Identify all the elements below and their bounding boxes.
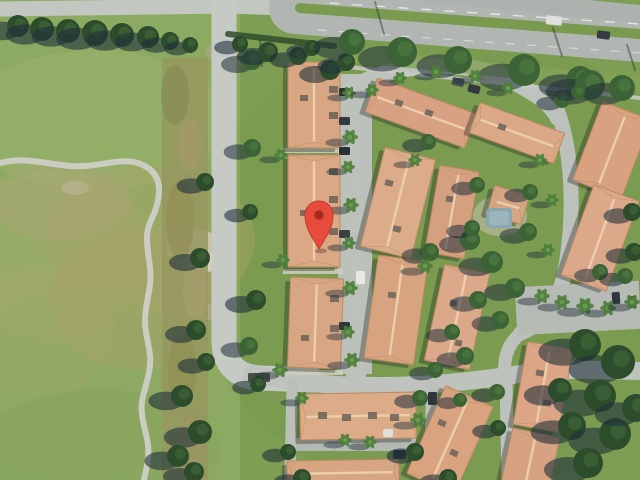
tree-highlight	[450, 326, 458, 334]
tree-highlight	[348, 33, 361, 46]
tree-highlight	[519, 59, 535, 75]
terrain-patch	[61, 181, 89, 195]
tree-highlight	[556, 382, 568, 394]
palm-crown	[630, 300, 635, 305]
rooftop-unit	[390, 414, 399, 421]
palm-crown	[281, 258, 285, 262]
tree-highlight	[598, 266, 606, 274]
satellite-canvas[interactable]	[0, 0, 640, 480]
palm-crown	[346, 330, 350, 334]
tree-highlight	[458, 395, 465, 402]
tree-highlight	[568, 416, 582, 430]
palm-crown	[350, 358, 355, 363]
tree-highlight	[489, 254, 500, 265]
layer-pool	[486, 208, 512, 228]
tree-highlight	[188, 39, 196, 47]
tree-highlight	[528, 186, 536, 194]
tree-highlight	[248, 206, 256, 214]
tree-highlight	[426, 136, 434, 144]
terrain-patch	[161, 65, 189, 125]
marker-pin-dot	[314, 210, 323, 219]
vehicle	[339, 147, 350, 155]
palm-crown	[348, 286, 353, 291]
palm-crown	[347, 241, 351, 245]
tree-highlight	[193, 323, 203, 333]
rooftop-unit	[300, 95, 308, 101]
vehicle	[339, 230, 350, 238]
palm-crown	[348, 135, 353, 140]
tree-highlight	[253, 293, 263, 303]
vehicle	[597, 30, 611, 40]
tree-highlight	[613, 350, 630, 367]
tree-highlight	[495, 386, 503, 394]
tree-highlight	[580, 334, 596, 350]
palm-crown	[540, 294, 545, 299]
tree-highlight	[256, 378, 264, 386]
palm-crown	[370, 88, 374, 92]
palm-crown	[349, 203, 354, 208]
palm-crown	[550, 198, 554, 202]
palm-crown	[416, 418, 421, 423]
palm-crown	[413, 158, 417, 162]
palm-crown	[368, 440, 372, 444]
tree-highlight	[412, 446, 421, 455]
rooftop-unit	[329, 86, 338, 93]
tree-highlight	[179, 388, 190, 399]
tree-highlight	[512, 281, 522, 291]
tree-highlight	[246, 340, 255, 349]
palm-crown	[506, 86, 510, 90]
tree-highlight	[202, 176, 211, 185]
palm-crown	[300, 396, 304, 400]
palm-crown	[582, 303, 587, 308]
palm-crown	[423, 264, 428, 269]
tree-highlight	[576, 87, 583, 94]
tree-highlight	[595, 385, 611, 401]
vehicle	[339, 117, 350, 125]
rooftop-unit	[388, 291, 397, 298]
tree-highlight	[629, 206, 638, 215]
rooftop-unit	[368, 412, 377, 419]
vehicle	[383, 429, 393, 437]
tree-highlight	[398, 42, 413, 57]
palm-crown	[343, 438, 347, 442]
palm-crown	[434, 70, 438, 74]
tree-highlight	[631, 246, 640, 255]
tree-highlight	[197, 251, 207, 261]
tree-highlight	[470, 222, 478, 230]
rooftop-unit	[330, 325, 339, 332]
vehicle	[546, 15, 563, 26]
tree-highlight	[427, 246, 436, 255]
vehicle	[428, 392, 437, 405]
rooftop-unit	[318, 412, 327, 419]
tree-highlight	[249, 142, 258, 151]
vehicle	[612, 292, 621, 305]
palm-crown	[538, 158, 542, 162]
tree-highlight	[618, 79, 631, 92]
palm-crown	[346, 165, 350, 169]
tree-highlight	[433, 364, 441, 372]
tree-highlight	[203, 356, 212, 365]
tree-highlight	[265, 45, 275, 55]
palm-crown	[546, 248, 550, 252]
palm-crown	[560, 300, 565, 305]
tree-highlight	[238, 38, 246, 46]
rooftop-unit	[446, 195, 454, 202]
tree-highlight	[286, 446, 294, 454]
terrain-shape	[489, 211, 509, 225]
tree-highlight	[462, 350, 471, 359]
tree-highlight	[475, 294, 484, 303]
rooftop-unit	[329, 112, 338, 119]
palm-crown	[473, 74, 477, 78]
tree-highlight	[475, 179, 483, 187]
palm-crown	[398, 76, 402, 80]
marker-ground-shadow	[315, 249, 327, 254]
terrain-patch	[178, 119, 202, 171]
tree-highlight	[525, 226, 534, 235]
tree-highlight	[191, 465, 201, 475]
rooftop-unit	[301, 335, 309, 341]
tree-highlight	[497, 314, 506, 323]
rooftop-unit	[329, 196, 338, 203]
palm-crown	[278, 368, 283, 373]
tree-highlight	[584, 453, 599, 468]
vehicle	[356, 271, 365, 284]
tree-highlight	[175, 448, 186, 459]
palm-crown	[279, 153, 283, 157]
tree-highlight	[496, 422, 504, 430]
tree-highlight	[196, 424, 208, 436]
tree-highlight	[418, 392, 426, 400]
map-view	[0, 0, 640, 480]
tree-highlight	[623, 270, 631, 278]
rooftop-unit	[342, 414, 351, 421]
tree-highlight	[454, 50, 468, 64]
